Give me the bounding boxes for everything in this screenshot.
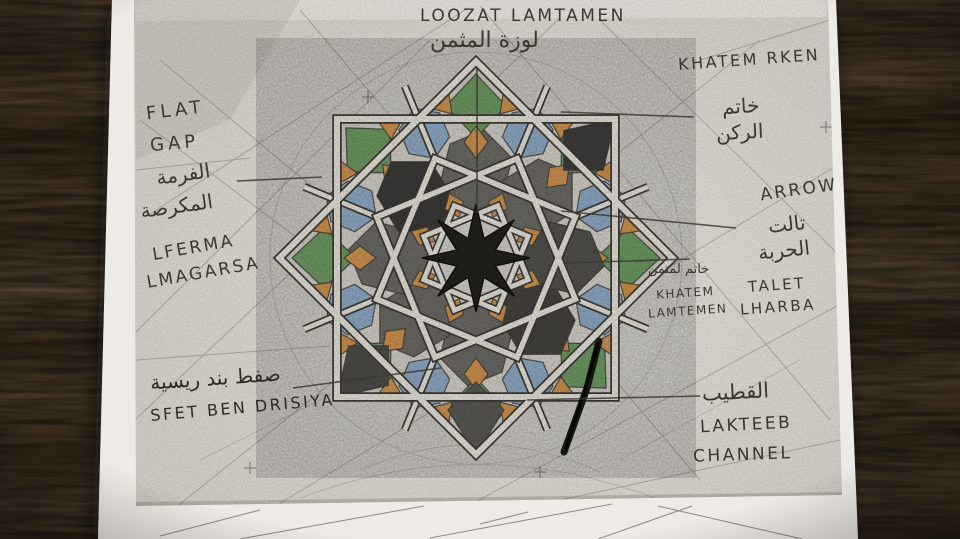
scene-graphics [0,0,960,539]
vignette [0,0,960,539]
photo-of-annotated-drawing: LOOZAT LAMTAMEN لوزة المثمن KHATEM RKEN … [0,0,960,539]
